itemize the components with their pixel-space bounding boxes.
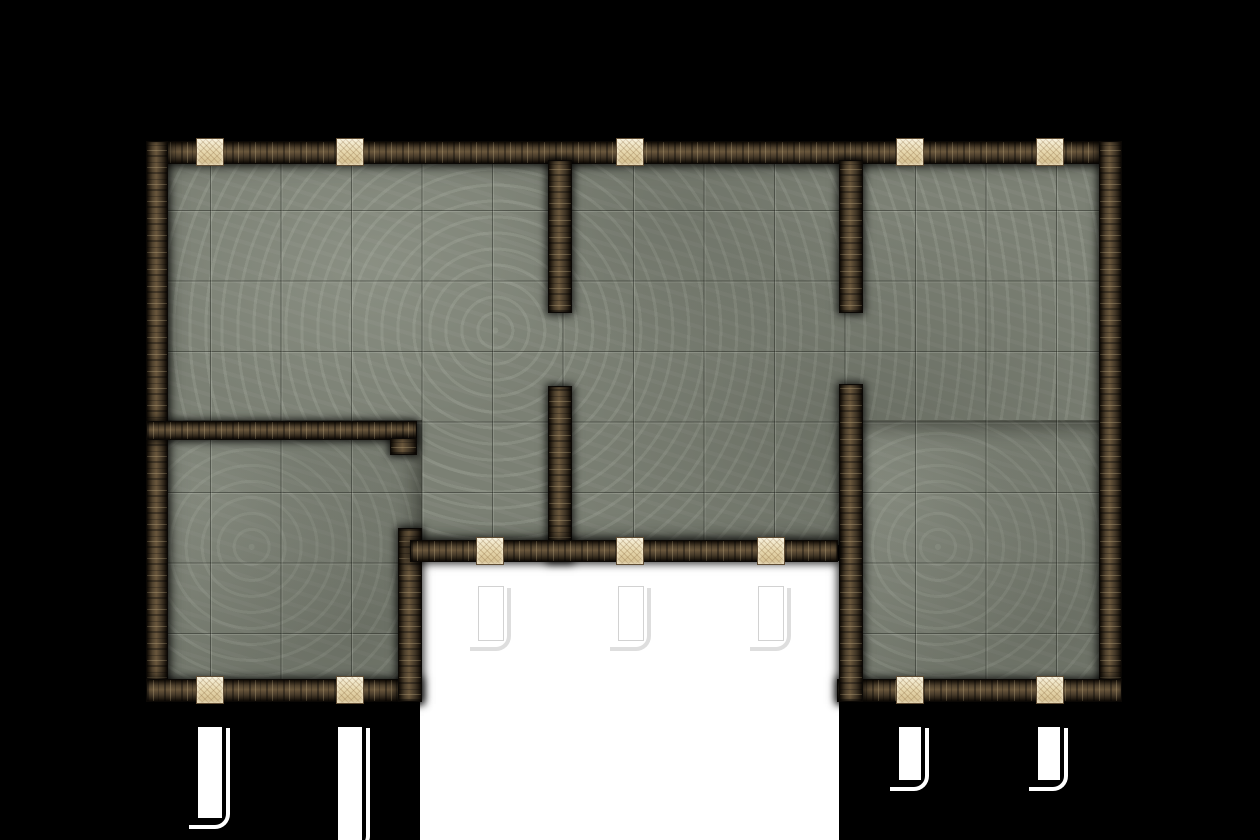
floor-tile-grid xyxy=(160,420,422,702)
divider-right-lower xyxy=(839,384,863,702)
door-marker-shadow xyxy=(1029,728,1068,791)
door-marker-middle-3 xyxy=(759,587,783,640)
divider-right-upper xyxy=(839,160,863,313)
door-marker-right-2 xyxy=(1038,727,1060,780)
floor-tile-grid xyxy=(841,420,1118,702)
door-right-wing-1 xyxy=(896,676,924,704)
door-top-5 xyxy=(1036,138,1064,166)
divider-left-upper xyxy=(548,160,572,313)
door-marker-left-1 xyxy=(198,727,222,818)
door-top-1 xyxy=(196,138,224,166)
right-wing-bottom-wall xyxy=(837,679,1122,702)
left-mid-wall-hook xyxy=(390,438,417,455)
floor-right-wing-room xyxy=(841,420,1118,702)
outer-right-wall xyxy=(1099,141,1122,702)
door-middle-south-2 xyxy=(616,537,644,565)
door-top-2 xyxy=(336,138,364,166)
door-top-4 xyxy=(896,138,924,166)
door-middle-south-1 xyxy=(476,537,504,565)
door-left-wing-2 xyxy=(336,676,364,704)
door-marker-middle-2 xyxy=(619,587,643,640)
floor-left-wing-room xyxy=(160,420,422,702)
door-marker-right-1 xyxy=(899,727,921,780)
door-marker-shadow xyxy=(890,728,929,791)
door-marker-shadow xyxy=(329,728,370,840)
door-top-3 xyxy=(616,138,644,166)
left-wing-bottom-wall xyxy=(146,679,422,702)
dungeon-map-canvas xyxy=(0,0,1260,840)
door-marker-middle-1 xyxy=(479,587,503,640)
door-marker-left-2 xyxy=(338,727,362,840)
left-mid-wall xyxy=(146,421,417,440)
door-left-wing-1 xyxy=(196,676,224,704)
divider-left-lower xyxy=(548,386,572,562)
door-right-wing-2 xyxy=(1036,676,1064,704)
door-middle-south-3 xyxy=(757,537,785,565)
door-marker-shadow xyxy=(189,728,230,829)
